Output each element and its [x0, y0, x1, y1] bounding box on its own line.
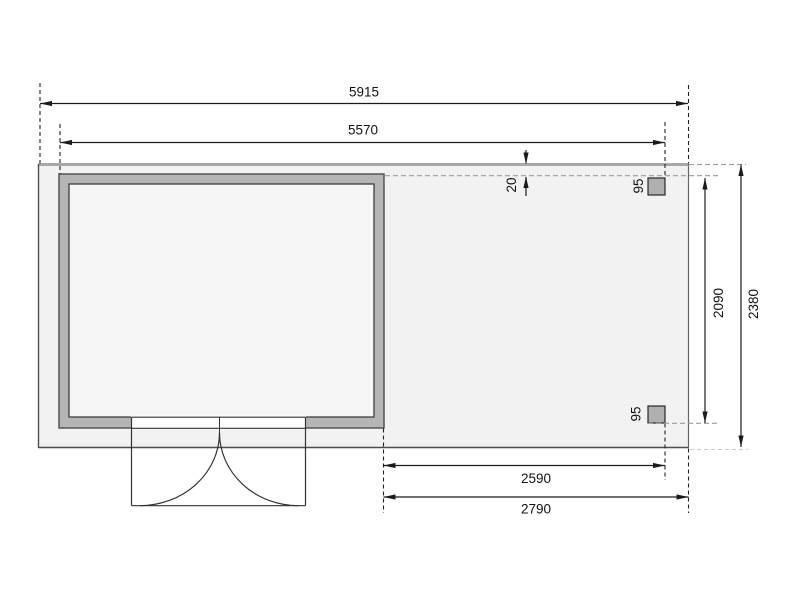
floorplan-canvas: 5915 5570 20 95 95 2090 2380 2590 2790 [0, 0, 800, 600]
arrow-canopy-depth-bottom [702, 412, 707, 424]
floorplan-drawing: 5915 5570 20 95 95 2090 2380 2590 2790 [0, 0, 800, 600]
label-canopy-depth: 2090 [711, 288, 726, 318]
arrow-canopy-outer-right [677, 494, 689, 499]
cabin-interior [69, 184, 374, 417]
arrow-edge-offset-top [523, 153, 528, 165]
arrow-total-depth-top [738, 165, 743, 177]
post-bottom [648, 406, 665, 423]
label-canopy-inner-width: 2590 [521, 471, 551, 486]
arrow-total-width-left [40, 101, 52, 106]
label-edge-offset: 20 [504, 177, 519, 192]
label-post-bottom-size: 95 [628, 406, 643, 421]
arrow-canopy-outer-left [384, 494, 396, 499]
arrow-cabin-width-left [60, 140, 72, 145]
arrow-canopy-inner-left [384, 463, 396, 468]
label-canopy-outer-width: 2790 [521, 502, 551, 517]
cabin [59, 174, 384, 428]
label-total-depth: 2380 [746, 289, 761, 319]
arrow-canopy-inner-right [653, 463, 665, 468]
arrow-canopy-depth-top [702, 178, 707, 190]
arrow-total-width-right [676, 101, 688, 106]
post-top [648, 178, 665, 195]
label-post-top-size: 95 [631, 178, 646, 193]
double-door [131, 416, 306, 506]
label-cabin-width: 5570 [348, 123, 378, 138]
label-total-width: 5915 [349, 85, 379, 100]
arrow-cabin-width-right [653, 140, 665, 145]
arrow-total-depth-bottom [738, 436, 743, 448]
